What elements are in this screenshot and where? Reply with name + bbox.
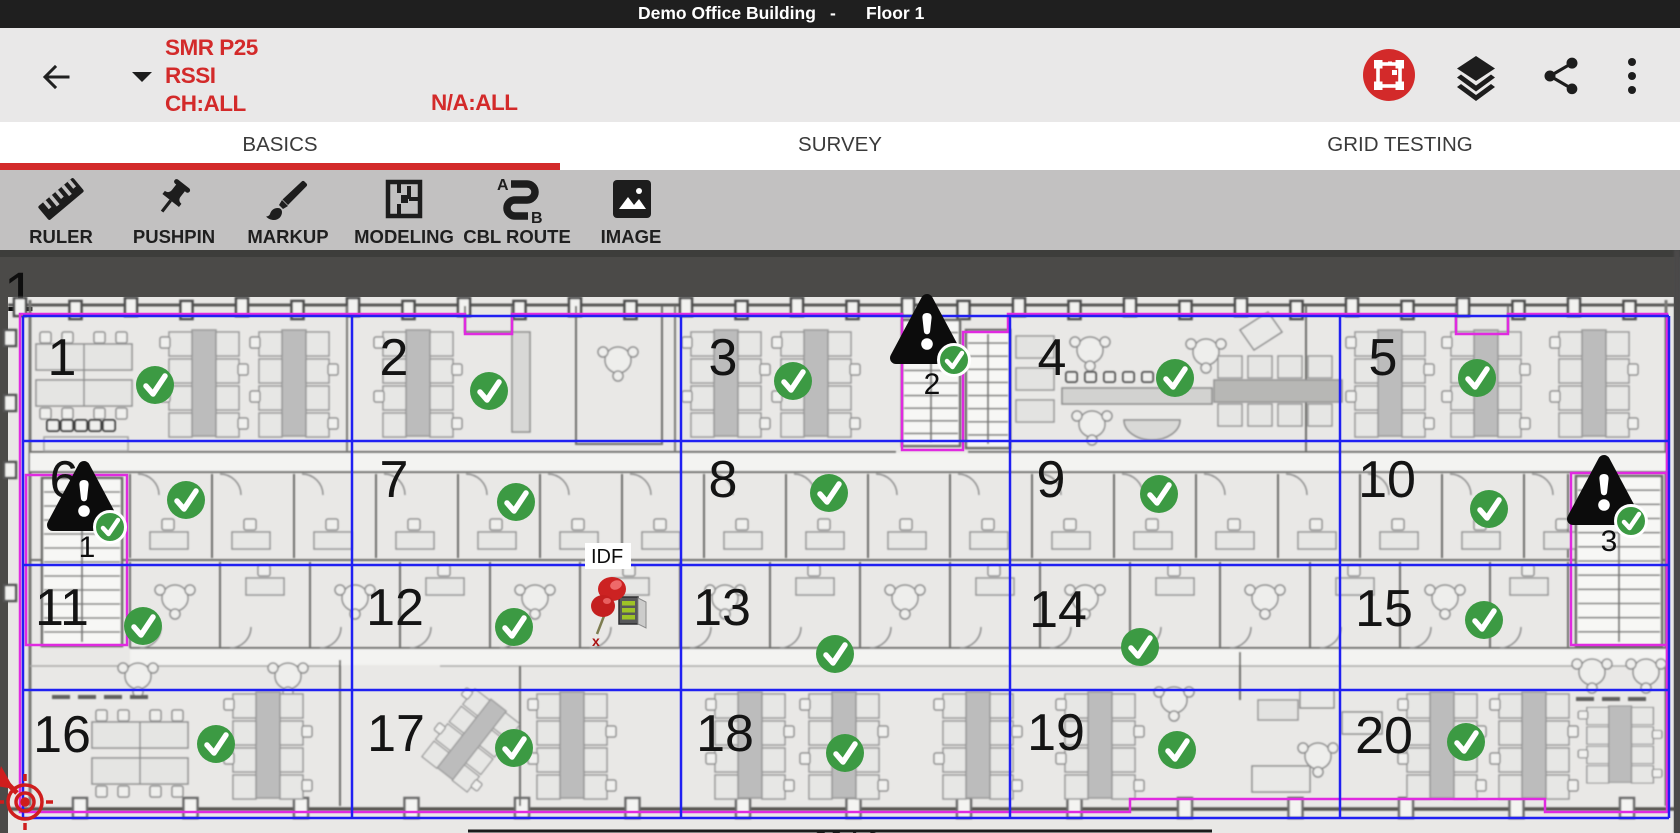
- svg-text:1: 1: [79, 531, 96, 564]
- svg-text:B: B: [531, 210, 543, 224]
- svg-text:1: 1: [48, 329, 77, 387]
- svg-text:19: 19: [1027, 704, 1085, 762]
- svg-text:2: 2: [380, 329, 409, 387]
- svg-text:20: 20: [1355, 707, 1413, 765]
- svg-text:304 ft: 304 ft: [813, 826, 883, 833]
- svg-text:16: 16: [33, 706, 91, 764]
- svg-text:18: 18: [696, 705, 754, 763]
- svg-text:11: 11: [35, 579, 89, 637]
- svg-text:3: 3: [1601, 525, 1618, 558]
- svg-text:10: 10: [1358, 451, 1416, 509]
- svg-text:IDF: IDF: [591, 546, 623, 568]
- svg-text:3: 3: [709, 329, 738, 387]
- svg-text:12: 12: [366, 579, 424, 637]
- svg-text:17: 17: [367, 705, 425, 763]
- svg-text:15: 15: [1355, 580, 1413, 638]
- svg-text:2: 2: [924, 368, 941, 401]
- svg-text:4: 4: [1038, 329, 1067, 387]
- svg-text:9: 9: [1037, 451, 1066, 509]
- svg-text:8: 8: [709, 451, 738, 509]
- svg-text:5: 5: [1369, 329, 1398, 387]
- svg-text:14: 14: [1029, 581, 1087, 639]
- svg-text:7: 7: [380, 451, 409, 509]
- svg-text:13: 13: [693, 579, 751, 637]
- svg-text:x: x: [592, 633, 600, 649]
- svg-text:A: A: [497, 177, 509, 194]
